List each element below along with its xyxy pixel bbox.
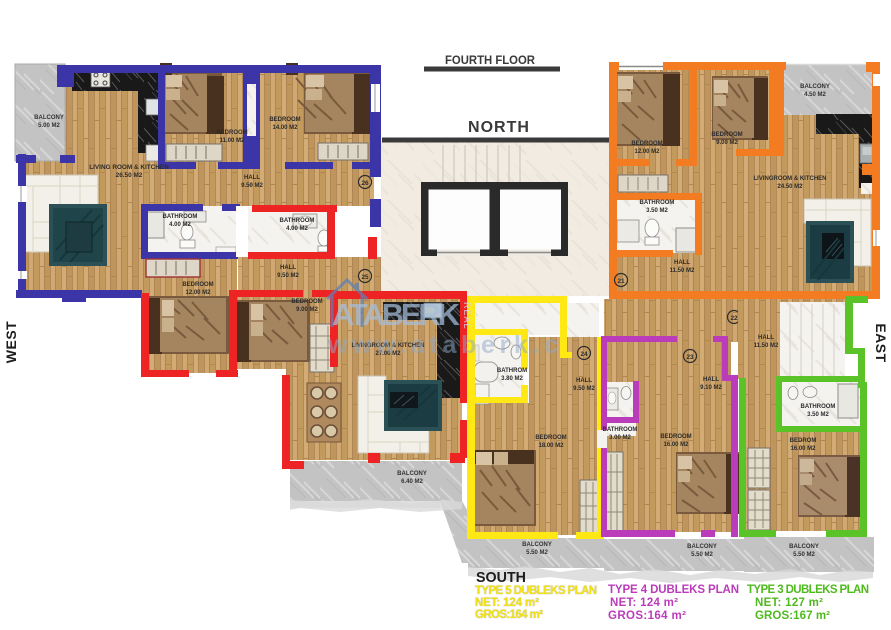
svg-text:LIVING ROOM & KITCHEN: LIVING ROOM & KITCHEN xyxy=(89,164,169,171)
svg-text:24: 24 xyxy=(580,351,588,358)
svg-text:GROS:167 m²: GROS:167 m² xyxy=(755,610,830,622)
svg-text:9.50 M2: 9.50 M2 xyxy=(277,273,299,279)
svg-text:TYPE 4 DUBLEKS PLAN: TYPE 4 DUBLEKS PLAN xyxy=(608,584,739,596)
svg-text:9.00 M2: 9.00 M2 xyxy=(716,140,738,146)
svg-text:HALL: HALL xyxy=(244,175,260,181)
svg-text:HALL: HALL xyxy=(576,378,592,384)
svg-text:BEDROOM: BEDROOM xyxy=(291,299,322,305)
svg-text:16.00 M2: 16.00 M2 xyxy=(663,442,689,448)
svg-text:BEDROOM: BEDROOM xyxy=(535,435,566,441)
svg-text:BEDROOM: BEDROOM xyxy=(631,141,662,147)
svg-text:BEDROM: BEDROM xyxy=(790,438,817,444)
svg-text:4.00 M2: 4.00 M2 xyxy=(169,222,191,228)
svg-text:BALCONY: BALCONY xyxy=(687,544,717,550)
svg-text:BEDROOM: BEDROOM xyxy=(182,282,213,288)
svg-text:REAL: REAL xyxy=(462,302,472,330)
svg-text:WEST: WEST xyxy=(3,321,19,363)
svg-text:GROS:164 m²: GROS:164 m² xyxy=(608,610,686,622)
svg-text:BATHROOM: BATHROOM xyxy=(640,200,675,206)
svg-text:SOUTH: SOUTH xyxy=(476,569,526,586)
svg-text:BALCONY: BALCONY xyxy=(34,115,64,121)
svg-text:5.50 M2: 5.50 M2 xyxy=(691,552,713,558)
svg-text:11.50 M2: 11.50 M2 xyxy=(754,343,779,349)
svg-text:BATHROOM: BATHROOM xyxy=(163,214,198,220)
svg-text:22: 22 xyxy=(730,315,738,322)
svg-text:BALCONY: BALCONY xyxy=(397,471,427,477)
svg-text:BALCONY: BALCONY xyxy=(789,544,819,550)
svg-text:4.50 M2: 4.50 M2 xyxy=(804,92,826,98)
svg-text:www.ataberk.c: www.ataberk.c xyxy=(327,331,558,359)
svg-text:12.00 M2: 12.00 M2 xyxy=(185,290,211,296)
svg-text:BATHROM: BATHROM xyxy=(497,368,527,374)
svg-text:4.00 M2: 4.00 M2 xyxy=(286,226,308,232)
svg-text:9.50 M2: 9.50 M2 xyxy=(573,386,595,392)
svg-text:BEDROOM: BEDROOM xyxy=(269,117,300,123)
svg-text:BEDROOM: BEDROOM xyxy=(216,130,247,136)
svg-text:12.00 M2: 12.00 M2 xyxy=(634,149,660,155)
svg-text:HALL: HALL xyxy=(703,377,719,383)
svg-text:9.10 M2: 9.10 M2 xyxy=(700,385,722,391)
svg-text:9.50 M2: 9.50 M2 xyxy=(241,183,263,189)
svg-text:5.00 M2: 5.00 M2 xyxy=(38,123,60,129)
svg-text:5.50 M2: 5.50 M2 xyxy=(793,552,815,558)
svg-text:26.50 M2: 26.50 M2 xyxy=(116,172,143,179)
svg-text:21: 21 xyxy=(617,278,625,285)
svg-text:11.00 M2: 11.00 M2 xyxy=(220,138,245,144)
svg-text:TYPE 5 DUBLEKS PLAN: TYPE 5 DUBLEKS PLAN xyxy=(475,585,597,597)
svg-text:25: 25 xyxy=(361,274,369,281)
svg-text:16.00 M2: 16.00 M2 xyxy=(790,446,816,452)
svg-text:11.50 M2: 11.50 M2 xyxy=(670,268,695,274)
svg-text:BEDROOM: BEDROOM xyxy=(711,132,742,138)
svg-text:14.00 M2: 14.00 M2 xyxy=(272,125,298,131)
svg-text:BATHROOM: BATHROOM xyxy=(280,218,315,224)
svg-text:9.00 M2: 9.00 M2 xyxy=(296,307,318,313)
svg-text:NET: 127 m²: NET: 127 m² xyxy=(755,597,823,609)
svg-text:GROS:164 m²: GROS:164 m² xyxy=(475,609,543,621)
svg-text:NET: 124 m²: NET: 124 m² xyxy=(475,597,539,609)
svg-text:HALL: HALL xyxy=(674,260,690,266)
svg-text:BALCONY: BALCONY xyxy=(522,542,552,548)
svg-text:HALL: HALL xyxy=(758,335,774,341)
svg-text:TYPE 3 DUBLEKS PLAN: TYPE 3 DUBLEKS PLAN xyxy=(747,584,869,596)
svg-text:3.00 M2: 3.00 M2 xyxy=(609,435,631,441)
svg-text:ATABERK: ATABERK xyxy=(332,297,461,332)
svg-text:LIVINGROOM & KITCHEN: LIVINGROOM & KITCHEN xyxy=(754,176,827,182)
svg-text:NORTH: NORTH xyxy=(468,119,530,136)
svg-text:BATHROOM: BATHROOM xyxy=(801,404,836,410)
svg-text:NET: 124 m²: NET: 124 m² xyxy=(610,597,678,609)
svg-text:EAST: EAST xyxy=(873,323,889,362)
svg-text:3.50 M2: 3.50 M2 xyxy=(807,412,829,418)
svg-text:BEDROOM: BEDROOM xyxy=(660,434,691,440)
svg-text:23: 23 xyxy=(686,354,694,361)
svg-text:3.50 M2: 3.50 M2 xyxy=(646,208,668,214)
svg-text:3.80 M2: 3.80 M2 xyxy=(501,376,523,382)
svg-text:BATHROOM: BATHROOM xyxy=(603,427,638,433)
svg-text:24.50 M2: 24.50 M2 xyxy=(777,184,803,190)
svg-text:18.00 M2: 18.00 M2 xyxy=(538,443,564,449)
svg-text:BALCONY: BALCONY xyxy=(800,84,830,90)
svg-text:HALL: HALL xyxy=(280,265,296,271)
svg-text:26: 26 xyxy=(361,180,369,187)
svg-text:FOURTH FLOOR: FOURTH FLOOR xyxy=(445,53,535,67)
svg-text:6.40 M2: 6.40 M2 xyxy=(401,479,423,485)
svg-text:5.50 M2: 5.50 M2 xyxy=(526,550,548,556)
